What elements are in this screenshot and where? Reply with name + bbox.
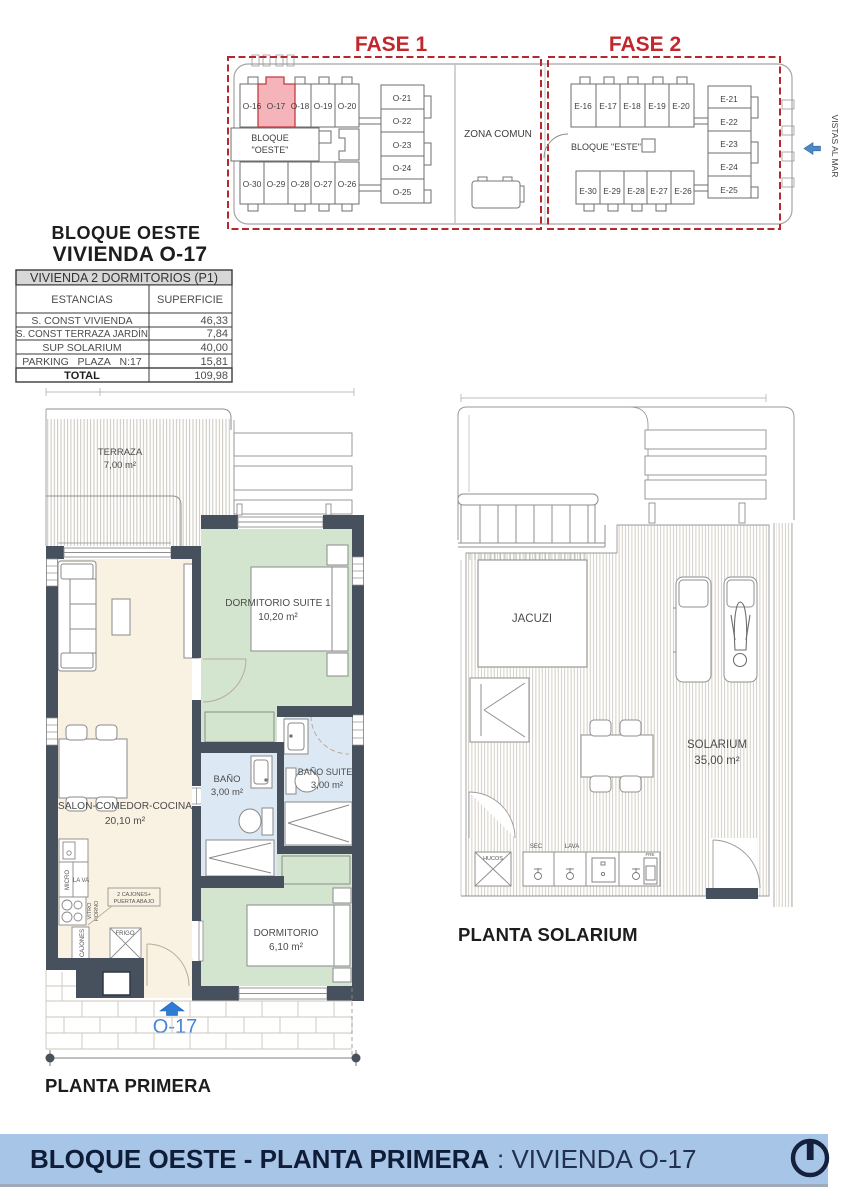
svg-text:2 CAJONES+: 2 CAJONES+ — [117, 892, 151, 898]
svg-text:40,00: 40,00 — [200, 342, 228, 354]
svg-text:SEC: SEC — [530, 844, 543, 850]
svg-text:7,84: 7,84 — [207, 328, 228, 340]
svg-text:O-17: O-17 — [267, 101, 286, 111]
svg-text:O-26: O-26 — [338, 179, 357, 189]
svg-text:20,10 m²: 20,10 m² — [105, 816, 146, 827]
svg-text:VISTAS AL MAR: VISTAS AL MAR — [830, 115, 840, 178]
svg-text:S. CONST TERRAZA JARDÍN: S. CONST TERRAZA JARDÍN — [16, 329, 148, 340]
svg-text:E-21: E-21 — [720, 94, 738, 104]
svg-text:BAÑO SUITE: BAÑO SUITE — [298, 767, 353, 777]
svg-text:BLOQUE "ESTE": BLOQUE "ESTE" — [571, 142, 641, 152]
svg-text:SUPERFICIE: SUPERFICIE — [157, 294, 223, 306]
svg-text:6,10 m²: 6,10 m² — [269, 942, 304, 953]
svg-text:E-19: E-19 — [648, 101, 666, 111]
svg-text:PLANTA SOLARIUM: PLANTA SOLARIUM — [458, 924, 638, 945]
svg-text:E-28: E-28 — [627, 186, 645, 196]
svg-text:E-24: E-24 — [720, 162, 738, 172]
svg-text:O-21: O-21 — [393, 93, 412, 103]
svg-text:FRE: FRE — [646, 852, 655, 857]
svg-text:HUCOS: HUCOS — [483, 856, 503, 862]
svg-text:O-30: O-30 — [243, 179, 262, 189]
svg-text:E-17: E-17 — [599, 101, 617, 111]
svg-text:BLOQUE OESTE - PLANTA PRIMERA: BLOQUE OESTE - PLANTA PRIMERA — [30, 1144, 490, 1174]
svg-text:E-25: E-25 — [720, 185, 738, 195]
svg-text:VIVIENDA 2 DORMITORIOS (P1): VIVIENDA 2 DORMITORIOS (P1) — [30, 271, 218, 285]
svg-text:CAJONES: CAJONES — [80, 929, 86, 957]
svg-text:E-22: E-22 — [720, 117, 738, 127]
svg-text:DORMITORIO SUITE 1: DORMITORIO SUITE 1 — [225, 598, 331, 609]
svg-text:TERRAZA: TERRAZA — [98, 447, 143, 458]
svg-text:E-20: E-20 — [672, 101, 690, 111]
svg-text:46,33: 46,33 — [200, 315, 228, 327]
svg-text:"OESTE": "OESTE" — [252, 145, 289, 155]
svg-text:LAVA: LAVA — [565, 844, 579, 850]
svg-text:O-22: O-22 — [393, 116, 412, 126]
svg-text:BLOQUE: BLOQUE — [251, 133, 289, 143]
svg-text:JACUZI: JACUZI — [512, 613, 552, 625]
svg-text:PLANTA PRIMERA: PLANTA PRIMERA — [45, 1075, 211, 1096]
svg-text:DORMITORIO: DORMITORIO — [254, 928, 319, 939]
svg-text:FASE 1: FASE 1 — [355, 33, 428, 56]
svg-text:SALON-COMEDOR-COCINA: SALON-COMEDOR-COCINA — [58, 801, 192, 812]
svg-text:VITRO: VITRO — [87, 902, 93, 920]
svg-text:O-16: O-16 — [243, 101, 262, 111]
svg-text:FRIGO: FRIGO — [116, 931, 135, 937]
svg-text:3,00 m²: 3,00 m² — [211, 787, 243, 798]
svg-text:ZONA COMUN: ZONA COMUN — [464, 129, 532, 140]
svg-text:O-18: O-18 — [291, 101, 310, 111]
svg-text:E-16: E-16 — [574, 101, 592, 111]
svg-text:O-24: O-24 — [393, 163, 412, 173]
svg-text:109,98: 109,98 — [194, 370, 228, 382]
svg-text:BLOQUE OESTE: BLOQUE OESTE — [51, 223, 200, 243]
svg-text:PUERTA ABAJO: PUERTA ABAJO — [114, 899, 155, 905]
svg-text:E-27: E-27 — [650, 186, 668, 196]
svg-text:SUP SOLARIUM: SUP SOLARIUM — [42, 342, 121, 354]
svg-text:7,00 m²: 7,00 m² — [104, 460, 136, 471]
svg-text:LA VA: LA VA — [73, 878, 89, 884]
svg-text:O-20: O-20 — [338, 101, 357, 111]
svg-text:E-26: E-26 — [674, 186, 692, 196]
svg-text:10,20 m²: 10,20 m² — [258, 612, 298, 623]
svg-text:BAÑO: BAÑO — [214, 774, 241, 785]
svg-text:15,81: 15,81 — [200, 356, 228, 368]
svg-text:35,00 m²: 35,00 m² — [694, 755, 740, 767]
svg-text:O-23: O-23 — [393, 140, 412, 150]
svg-text:PARKING PLAZA N:17: PARKING PLAZA N:17 — [22, 356, 142, 368]
svg-text:TOTAL: TOTAL — [64, 370, 100, 382]
svg-text:VIVIENDA O-17: VIVIENDA O-17 — [53, 243, 208, 266]
svg-text:S. CONST VIVIENDA: S. CONST VIVIENDA — [31, 315, 132, 327]
svg-text:E-29: E-29 — [603, 186, 621, 196]
svg-text:O-17: O-17 — [153, 1016, 197, 1038]
svg-text:O-27: O-27 — [314, 179, 333, 189]
svg-text:O-29: O-29 — [267, 179, 286, 189]
svg-text:E-18: E-18 — [623, 101, 641, 111]
svg-text:MICRO: MICRO — [65, 870, 71, 890]
svg-text:O-28: O-28 — [291, 179, 310, 189]
svg-text:: VIVIENDA O-17: : VIVIENDA O-17 — [497, 1144, 696, 1174]
svg-text:FASE 2: FASE 2 — [609, 33, 681, 56]
svg-text:E-23: E-23 — [720, 139, 738, 149]
svg-text:O-19: O-19 — [314, 101, 333, 111]
svg-text:E-30: E-30 — [579, 186, 597, 196]
svg-text:ESTANCIAS: ESTANCIAS — [51, 294, 113, 306]
svg-text:3,00 m²: 3,00 m² — [311, 780, 343, 791]
svg-text:O-25: O-25 — [393, 187, 412, 197]
svg-text:SOLARIUM: SOLARIUM — [687, 739, 747, 751]
